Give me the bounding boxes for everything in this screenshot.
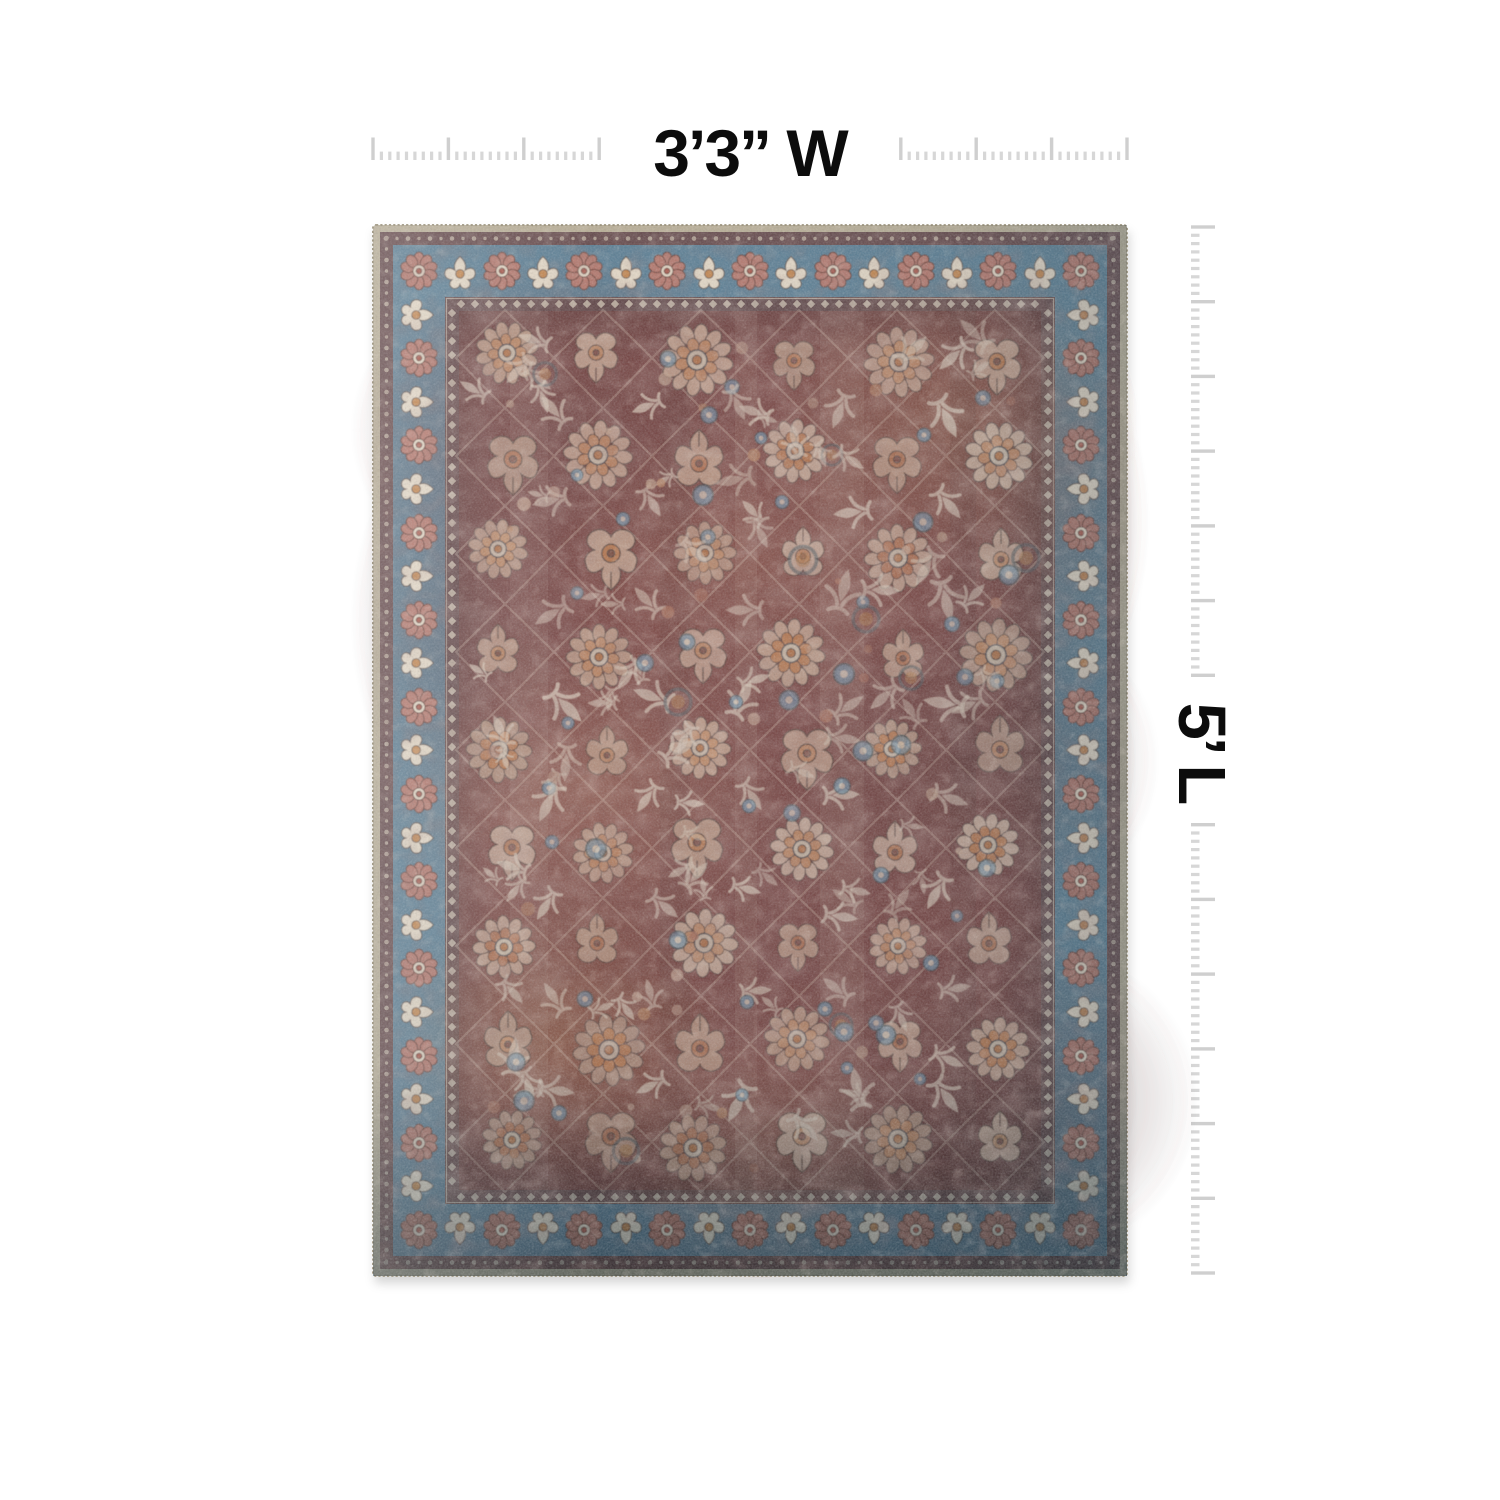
svg-text:3’3” W: 3’3” W: [653, 116, 849, 190]
svg-text:5’ L: 5’ L: [1164, 703, 1239, 804]
